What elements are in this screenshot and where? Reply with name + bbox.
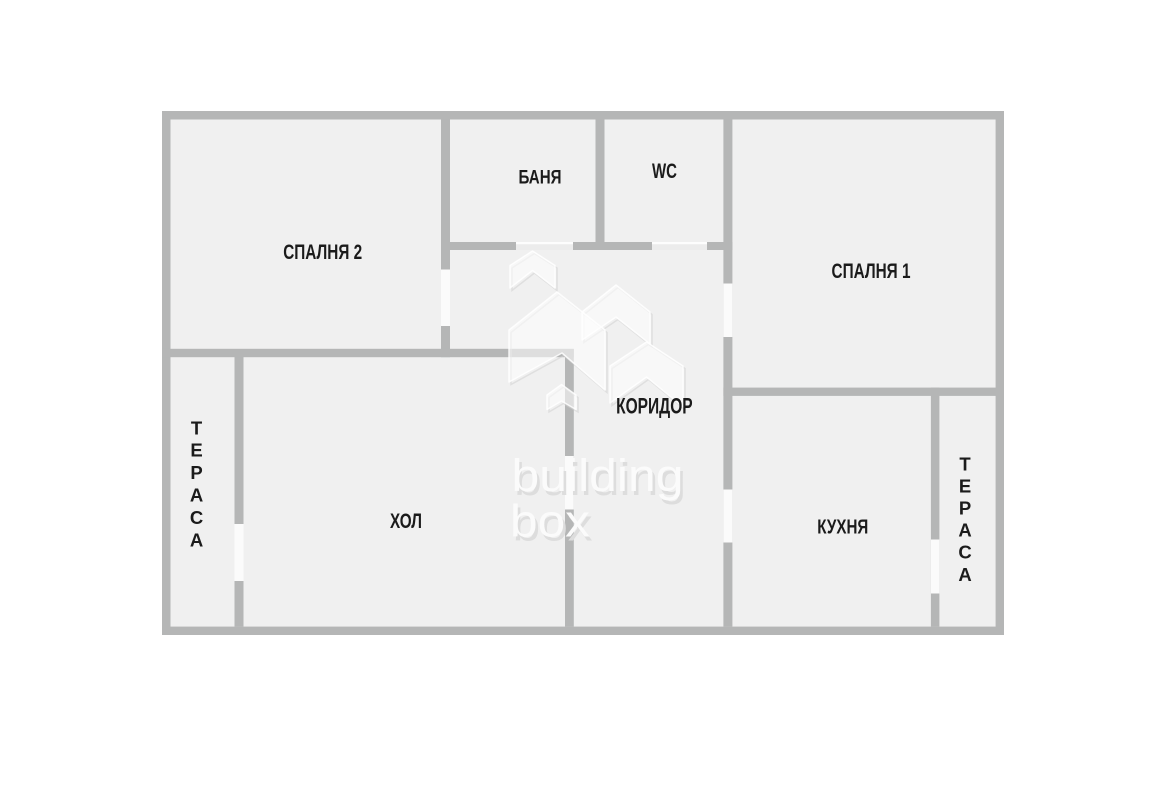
svg-text:building: building bbox=[512, 450, 684, 501]
svg-text:box: box bbox=[510, 496, 591, 547]
svg-text:WC: WC bbox=[652, 160, 677, 183]
svg-text:КУХНЯ: КУХНЯ bbox=[817, 517, 868, 539]
svg-text:СПАЛНЯ 2: СПАЛНЯ 2 bbox=[283, 241, 362, 264]
svg-text:БАНЯ: БАНЯ bbox=[519, 168, 562, 189]
svg-text:СПАЛНЯ 1: СПАЛНЯ 1 bbox=[832, 260, 911, 283]
svg-text:ТЕРАСА: ТЕРАСА bbox=[958, 453, 971, 585]
svg-text:ХОЛ: ХОЛ bbox=[390, 510, 422, 533]
svg-text:КОРИДОР: КОРИДОР bbox=[616, 394, 693, 419]
svg-text:ТЕРАСА: ТЕРАСА bbox=[190, 417, 203, 550]
